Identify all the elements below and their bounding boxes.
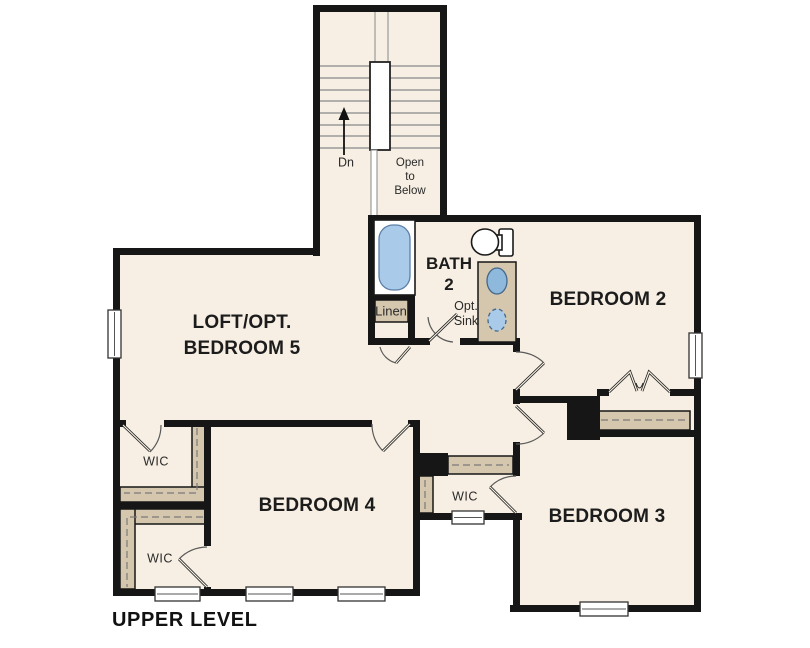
wic2-label: WIC [147,552,173,567]
opt-sink-line2: Sink [454,314,478,329]
window [452,511,484,524]
room-label-bedroom-3: BEDROOM 3 [549,504,666,530]
loft-label-line1: LOFT/OPT. [184,310,301,336]
bath-label-line2: 2 [426,274,472,295]
stairs-down-label: Dn [338,156,354,171]
bedroom2-closet-shelf [597,411,690,430]
toilet-icon [472,229,514,256]
room-label-bedroom-4: BEDROOM 4 [259,493,376,519]
floor-plan-svg [0,0,810,648]
room-label-loft: LOFT/OPT. BEDROOM 5 [184,310,301,362]
open-to-below-line3: Below [394,184,425,198]
window [338,587,385,601]
open-to-below-label: Open to Below [394,156,425,198]
opt-sink-label: Opt. Sink [454,299,478,329]
sink-icon [487,268,507,294]
window [108,310,121,358]
optional-sink-icon [488,309,506,331]
opt-sink-line1: Opt. [454,299,478,314]
linen-label: Linen [375,304,407,319]
wic3-label: WIC [452,490,478,505]
bathtub-icon [379,225,410,290]
loft-label-line2: BEDROOM 5 [184,336,301,362]
bath-label-line1: BATH [426,253,472,274]
window [155,587,200,601]
window [689,333,702,378]
room-label-bath-2: BATH 2 [426,253,472,295]
window [246,587,293,601]
open-to-below-line2: to [394,170,425,184]
stair-divider [371,150,377,218]
stair-railing [370,62,390,150]
open-to-below-line1: Open [394,156,425,170]
page-title: UPPER LEVEL [112,609,258,632]
room-label-bedroom-2: BEDROOM 2 [550,287,667,313]
wic1-label: WIC [143,455,169,470]
floor-plan: LOFT/OPT. BEDROOM 5 BEDROOM 2 BEDROOM 3 … [0,0,810,648]
wic1-shelf-bottom [120,487,207,502]
window [580,602,628,616]
